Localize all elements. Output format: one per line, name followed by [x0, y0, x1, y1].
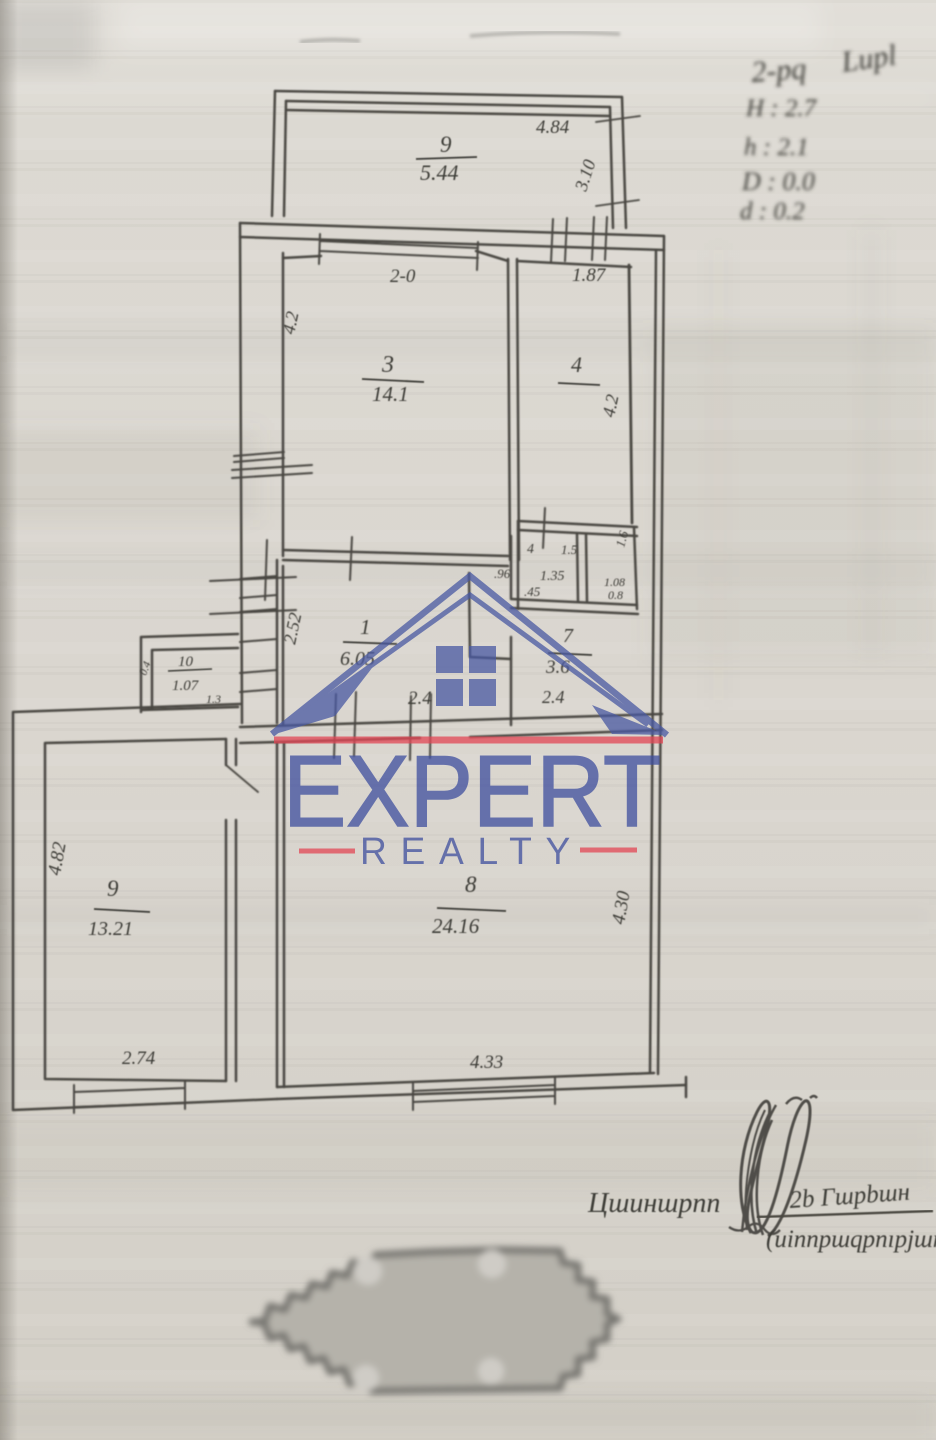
svg-text:.96: .96	[494, 566, 511, 581]
svg-text:1.08: 1.08	[604, 575, 625, 589]
svg-text:24.16: 24.16	[432, 914, 480, 938]
svg-text:h : 2.1: h : 2.1	[744, 134, 809, 161]
svg-text:2.74: 2.74	[122, 1048, 156, 1069]
svg-text:14.1: 14.1	[372, 382, 409, 406]
svg-text:H : 2.7: H : 2.7	[745, 95, 818, 122]
svg-text:1.5: 1.5	[561, 542, 578, 557]
svg-text:1.87: 1.87	[572, 265, 607, 286]
svg-text:d : 0.2: d : 0.2	[740, 198, 805, 225]
svg-text:10: 10	[178, 654, 194, 670]
svg-text:.45: .45	[524, 584, 541, 599]
svg-text:1.07: 1.07	[172, 678, 200, 694]
svg-text:0.8: 0.8	[608, 588, 623, 602]
svg-text:D : 0.0: D : 0.0	[741, 167, 815, 196]
svg-text:4.33: 4.33	[470, 1052, 503, 1073]
svg-text:7: 7	[563, 625, 574, 647]
svg-text:8: 8	[465, 872, 477, 897]
svg-text:1.3: 1.3	[206, 692, 221, 706]
svg-text:3: 3	[381, 352, 394, 378]
svg-text:4.84: 4.84	[536, 117, 570, 138]
svg-text:9: 9	[107, 876, 119, 901]
svg-text:13.21: 13.21	[88, 918, 133, 940]
svg-text:1: 1	[360, 615, 371, 639]
svg-text:5.44: 5.44	[420, 160, 459, 185]
svg-text:2.4: 2.4	[408, 688, 432, 709]
svg-text:REALTY: REALTY	[360, 831, 584, 873]
svg-text:9: 9	[440, 132, 452, 157]
svg-text:1.35: 1.35	[540, 569, 565, 584]
svg-text:2-pq: 2-pq	[750, 52, 807, 89]
svg-text:Цшиншрпп: Цшиншрпп	[587, 1188, 720, 1219]
svg-text:2-0: 2-0	[390, 266, 416, 287]
svg-text:2.4: 2.4	[542, 687, 565, 707]
svg-text:4: 4	[571, 352, 582, 377]
svg-text:4: 4	[527, 542, 534, 557]
svg-text:(uinnpшqpnıpjшн: (uinnpшqpnıpjшн	[766, 1226, 936, 1253]
